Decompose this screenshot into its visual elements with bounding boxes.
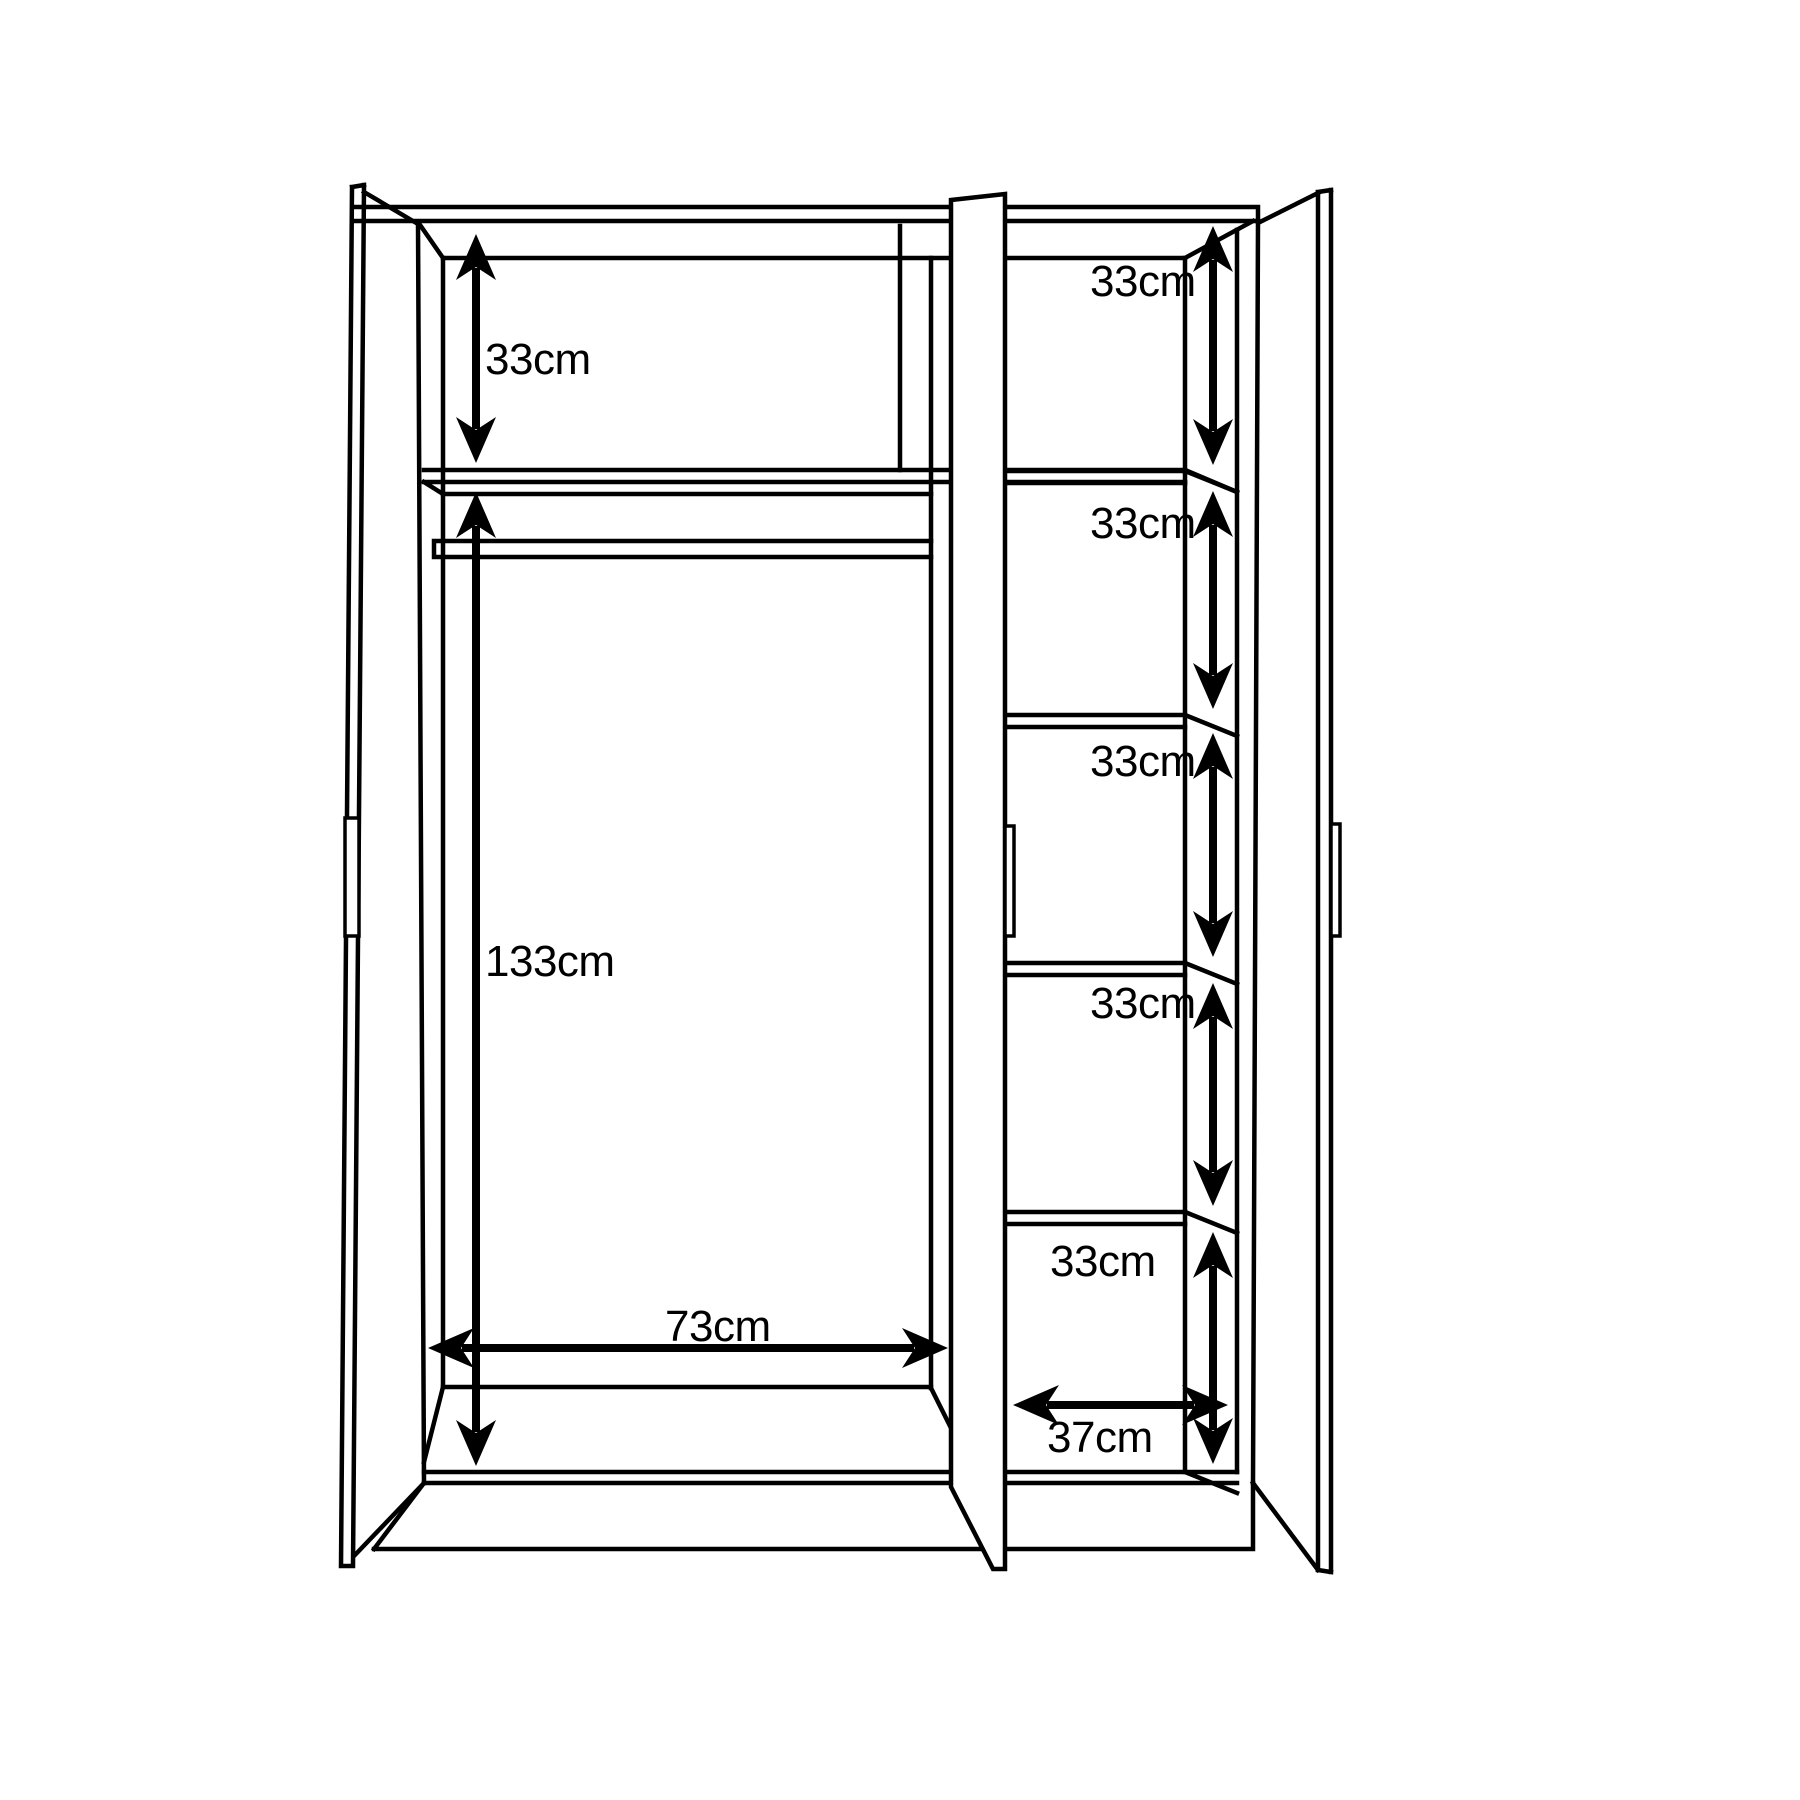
dim-arrow-shelf-1 bbox=[1193, 226, 1233, 465]
dim-label-shelf-3: 33cm bbox=[1090, 737, 1196, 786]
dim-label-right-width: 37cm bbox=[1047, 1413, 1153, 1462]
dim-label-left-top-gap: 33cm bbox=[485, 335, 591, 384]
right-door-handle bbox=[1331, 824, 1340, 936]
hanging-rail bbox=[434, 541, 931, 557]
dim-label-hanging-height: 133cm bbox=[485, 937, 615, 986]
dim-label-shelf-4: 33cm bbox=[1090, 979, 1196, 1028]
right-side-wall bbox=[1185, 221, 1258, 1483]
middle-door bbox=[951, 194, 1014, 1569]
right-shelf-1 bbox=[1005, 471, 1237, 492]
left-side-wall bbox=[418, 222, 443, 1483]
dim-label-shelf-2: 33cm bbox=[1090, 499, 1196, 548]
dimension-labels: 33cm 133cm 73cm 33cm 33cm 33cm 33cm 33cm… bbox=[485, 257, 1196, 1462]
dim-label-left-width: 73cm bbox=[665, 1302, 771, 1351]
middle-door-handle bbox=[1005, 826, 1014, 936]
left-door-handle bbox=[345, 818, 359, 936]
dim-label-shelf-5: 33cm bbox=[1050, 1237, 1156, 1286]
right-shelf-2 bbox=[1005, 715, 1237, 736]
right-door-panel bbox=[1253, 190, 1331, 1572]
dim-arrow-shelf-4 bbox=[1193, 983, 1233, 1206]
plinth bbox=[374, 1483, 1253, 1549]
dim-arrow-shelf-3 bbox=[1193, 733, 1233, 957]
left-door bbox=[341, 185, 424, 1566]
middle-door-panel bbox=[951, 194, 1005, 1569]
right-door bbox=[1253, 190, 1340, 1572]
right-shelf-4 bbox=[1005, 1212, 1237, 1233]
wardrobe-dimension-diagram: 33cm 133cm 73cm 33cm 33cm 33cm 33cm 33cm… bbox=[0, 0, 1800, 1800]
top-panel bbox=[355, 207, 1258, 221]
dim-label-shelf-1: 33cm bbox=[1090, 257, 1196, 306]
dim-arrow-shelf-5 bbox=[1193, 1232, 1233, 1464]
interior-ceiling-edge bbox=[418, 221, 1253, 258]
dim-arrow-shelf-2 bbox=[1193, 491, 1233, 709]
